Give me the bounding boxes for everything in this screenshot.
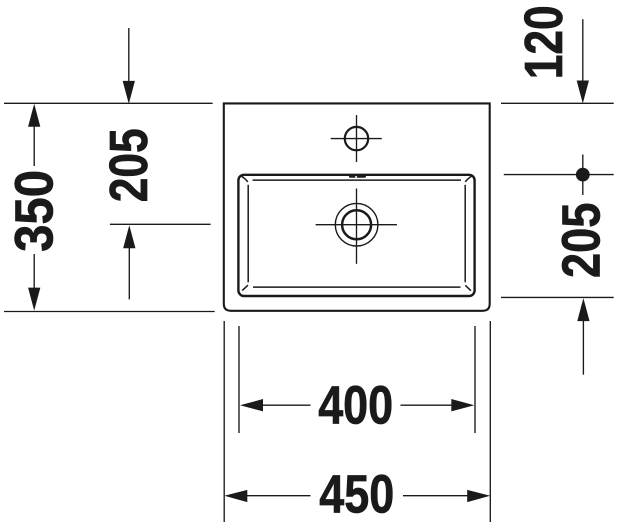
svg-text:120: 120	[514, 5, 574, 79]
svg-text:205: 205	[99, 128, 159, 202]
svg-text:400: 400	[318, 376, 393, 436]
svg-text:450: 450	[319, 464, 394, 524]
svg-text:350: 350	[4, 170, 64, 252]
svg-text:205: 205	[552, 203, 612, 278]
